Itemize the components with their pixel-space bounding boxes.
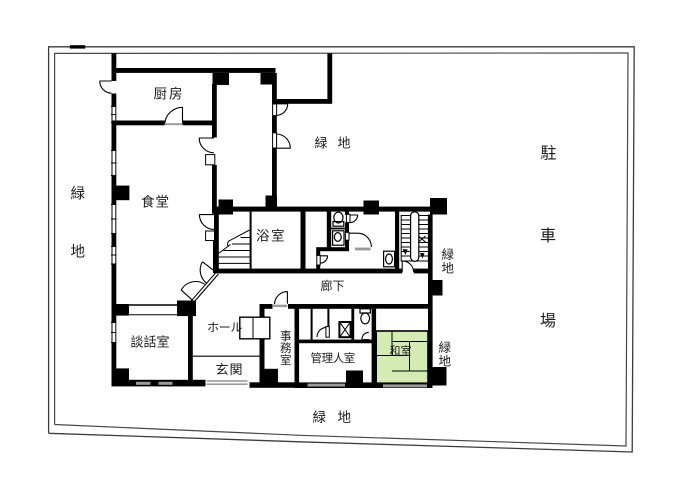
svg-text:管理人室: 管理人室 (311, 351, 355, 365)
svg-text:緑: 緑 (442, 247, 455, 262)
svg-text:和室: 和室 (390, 344, 412, 358)
svg-text:緑: 緑 (71, 186, 86, 203)
svg-text:室: 室 (280, 353, 292, 367)
svg-text:地: 地 (442, 262, 455, 276)
svg-text:地: 地 (439, 355, 452, 369)
svg-text:廊下: 廊下 (321, 278, 345, 293)
svg-text:駐: 駐 (541, 145, 557, 163)
svg-text:緑: 緑 (313, 410, 327, 425)
svg-text:緑: 緑 (315, 136, 328, 151)
svg-text:場: 場 (540, 312, 556, 330)
svg-text:務: 務 (280, 341, 292, 355)
svg-text:浴室: 浴室 (256, 228, 286, 244)
svg-text:緑: 緑 (439, 340, 452, 355)
svg-text:事: 事 (280, 330, 292, 343)
svg-text:談話室: 談話室 (131, 335, 170, 350)
svg-text:厨房: 厨房 (154, 87, 185, 102)
svg-text:ホール: ホール (207, 321, 242, 335)
svg-text:車: 車 (540, 227, 556, 245)
svg-text:地: 地 (338, 136, 351, 151)
svg-text:地: 地 (71, 244, 86, 261)
svg-text:玄関: 玄関 (216, 362, 244, 377)
svg-text:食堂: 食堂 (141, 194, 170, 210)
svg-text:地: 地 (338, 410, 352, 425)
